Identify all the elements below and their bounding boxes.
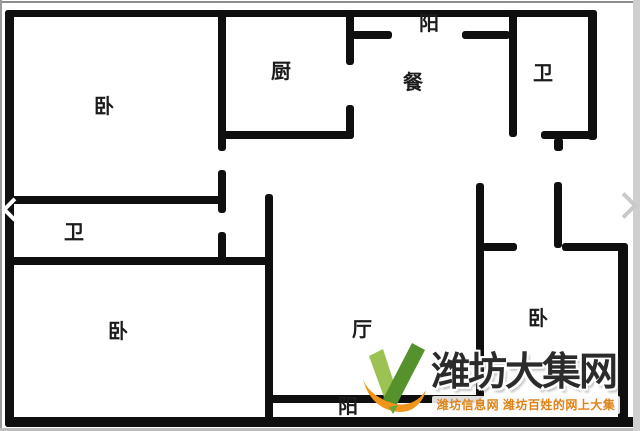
room-label-bedroom-top-left: 卧 — [94, 97, 114, 117]
image-border-left — [0, 0, 2, 431]
image-border-right — [633, 0, 640, 431]
room-label-living-room: 厅 — [352, 320, 372, 340]
room-label-balcony-top: 阳 — [419, 14, 439, 34]
daji-v-logo-icon — [362, 343, 428, 417]
watermark-subtitle: 潍坊信息网 潍坊百姓的网上大集 — [432, 396, 620, 414]
image-border-top — [0, 1, 640, 3]
room-label-bedroom-bottom-right: 卧 — [528, 309, 548, 329]
room-label-bathroom-left: 卫 — [64, 223, 84, 243]
floorplan-image: 卧厨阳餐卫卫卧厅卧阳 潍坊大集网 潍坊信息网 潍坊百姓的网上大集 — [0, 0, 640, 431]
watermark-title: 潍坊大集网 — [431, 353, 616, 394]
room-label-bathroom-top-right: 卫 — [533, 64, 553, 84]
room-label-bedroom-bottom-left: 卧 — [108, 322, 128, 342]
room-label-balcony-bottom: 阳 — [338, 397, 358, 417]
room-label-kitchen: 厨 — [271, 62, 291, 82]
room-label-dining: 餐 — [403, 73, 423, 93]
